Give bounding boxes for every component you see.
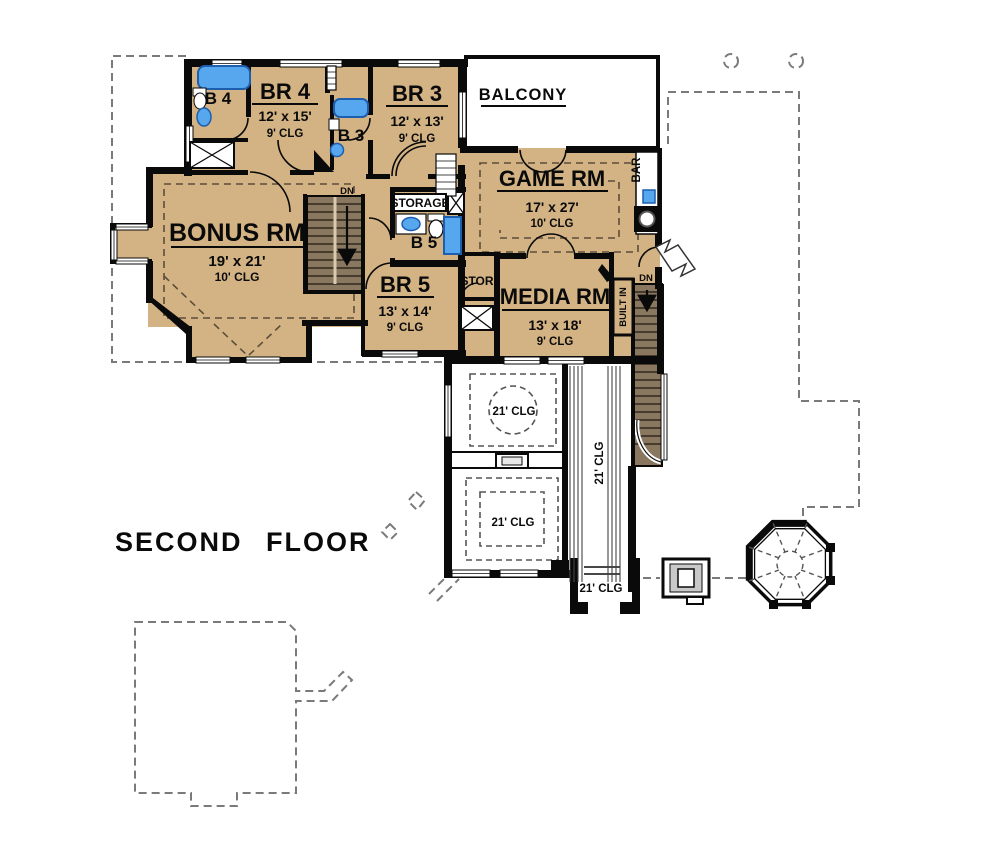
br4-dims: 12' x 15' [258,108,311,124]
beam-box [496,454,528,468]
dn-label-2: DN [639,273,653,284]
roof-finial-diamond-2 [408,492,425,510]
storage-label: STORAGE [390,196,449,210]
bonus-name: BONUS RM [169,219,305,247]
b4-label: B 4 [205,89,232,108]
game-name: GAME RM [499,166,605,191]
clg21-lower: 21' CLG [492,517,535,529]
clg21-strip: 21' CLG [594,441,606,484]
bonus-dims: 19' x 21' [208,253,265,270]
br5-name: BR 5 [380,272,430,297]
turret-octagon [749,523,835,609]
roof-finial-circle-1 [724,54,738,68]
roof-outline-right [668,92,859,521]
garage-roof-outline [135,622,352,806]
floor-plan-page: BR 4 12' x 15' 9' CLG B 4 BR 3 12' x 13'… [0,0,1000,848]
center-stair [307,196,363,293]
bar-sink [643,190,655,203]
br3-name: BR 3 [392,81,442,106]
br3-dims: 12' x 13' [390,113,443,129]
br5-clg: 9' CLG [387,322,424,334]
br3-clg: 9' CLG [399,133,436,145]
b5-shower [444,217,461,254]
media-dims: 13' x 18' [528,317,581,333]
clg21-porch: 21' CLG [580,583,623,595]
b5-label: B 5 [411,233,437,252]
stor-label: STOR [460,274,493,288]
br4-name: BR 4 [260,79,311,104]
b3-sink [331,144,344,157]
bar-label: BAR [631,157,643,183]
media-name: MEDIA RM [500,284,610,309]
b5-sink [402,218,420,231]
dn-label-1: DN [340,186,354,197]
game-clg: 10' CLG [531,218,574,230]
b4-sink [197,108,211,126]
balcony-label: BALCONY [479,86,568,104]
page-title: SECOND FLOOR [115,527,371,557]
built-in-label: BUILT IN [618,287,629,327]
roof-finial-circle-2 [789,54,803,68]
chimney [663,559,709,604]
bonus-clg: 10' CLG [215,270,260,284]
br4-clg: 9' CLG [267,128,304,140]
br5-dims: 13' x 14' [378,303,431,319]
bar-fixture [640,212,655,227]
clg21-upper: 21' CLG [493,406,536,418]
floor-plan-svg: BR 4 12' x 15' 9' CLG B 4 BR 3 12' x 13'… [0,0,1000,848]
b4-tub [198,66,250,89]
game-dims: 17' x 27' [525,199,578,215]
b3-label: B 3 [338,126,364,145]
media-clg: 9' CLG [537,336,574,348]
b3-tub [334,99,368,117]
roof-finial-diamond-1 [382,524,398,540]
